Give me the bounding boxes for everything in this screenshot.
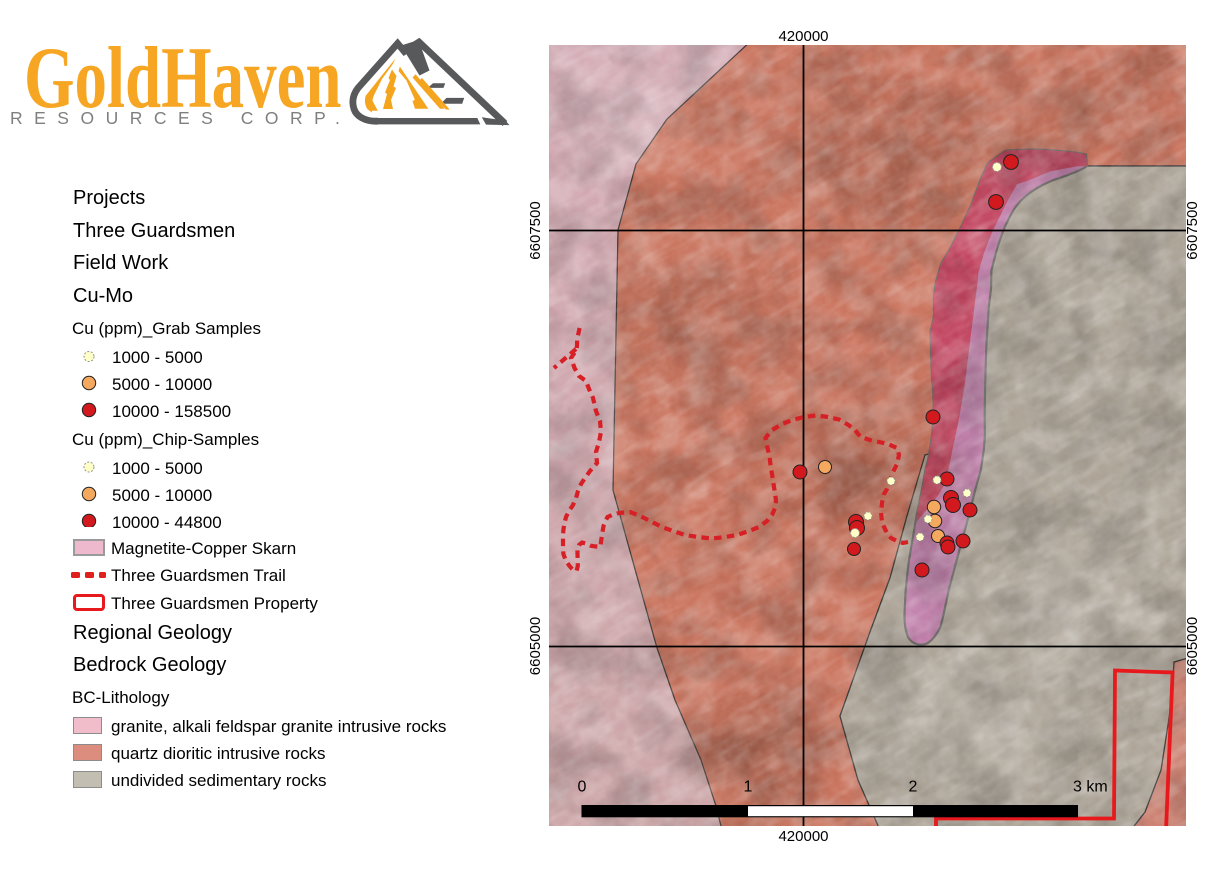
svg-text:6605000: 6605000 bbox=[1184, 617, 1201, 675]
svg-text:3 km: 3 km bbox=[1073, 779, 1108, 796]
svg-text:6605000: 6605000 bbox=[527, 617, 544, 675]
svg-text:1: 1 bbox=[744, 779, 753, 796]
svg-text:6607500: 6607500 bbox=[1184, 201, 1201, 259]
svg-text:6607500: 6607500 bbox=[527, 201, 544, 259]
svg-text:420000: 420000 bbox=[778, 828, 828, 845]
svg-text:0: 0 bbox=[578, 779, 587, 796]
svg-text:420000: 420000 bbox=[778, 28, 828, 45]
svg-text:2: 2 bbox=[909, 779, 918, 796]
